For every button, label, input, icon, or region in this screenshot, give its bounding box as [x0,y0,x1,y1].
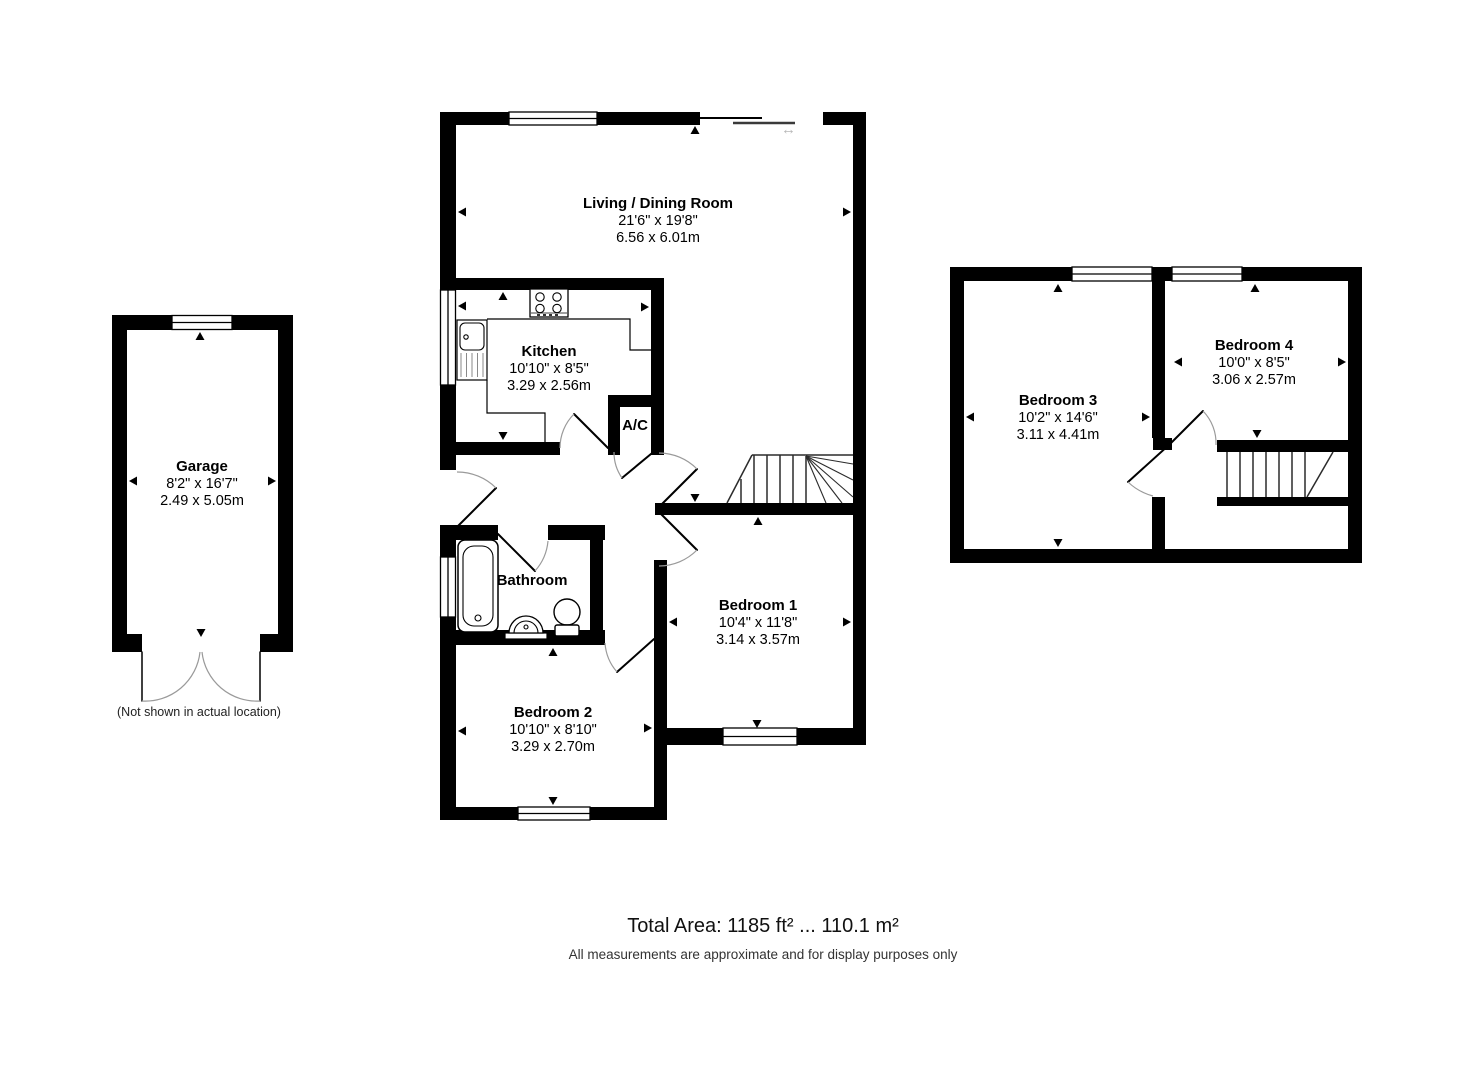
ac-closet-door-swing [614,449,657,478]
total-area-text: Total Area: 1185 ft² ... 110.1 m² [413,915,1113,938]
room-name: Living / Dining Room [548,195,768,213]
room-name: A/C [605,417,665,435]
room-dim-imperial: 8'2" x 16'7" [122,476,282,494]
garage-location-note: (Not shown in actual location) [89,705,309,719]
room-label-living-dining: Living / Dining Room 21'6" x 19'8" 6.56 … [548,195,768,248]
room-name: Bedroom 2 [473,704,633,722]
kitchen-door-swing [560,414,608,448]
room-label-kitchen: Kitchen 10'10" x 8'5" 3.29 x 2.56m [469,343,629,396]
room-dim-metric: 3.29 x 2.70m [473,739,633,757]
room-dim-imperial: 10'4" x 11'8" [678,615,838,633]
bedroom3-window [1072,267,1152,281]
room-name: Bedroom 4 [1174,337,1334,355]
bedroom2-window [518,807,590,820]
first-floor-doors [1128,411,1216,496]
front-door-swing [457,472,496,527]
room-dim-imperial: 21'6" x 19'8" [548,213,768,231]
staircase-ground [727,455,853,503]
hob-icon [530,289,568,317]
sliding-patio-door: ↔ [700,118,796,138]
bedroom4-window [1172,267,1242,281]
room-label-bedroom4: Bedroom 4 10'0" x 8'5" 3.06 x 2.57m [1174,337,1334,390]
room-dim-imperial: 10'0" x 8'5" [1174,355,1334,373]
disclaimer-text: All measurements are approximate and for… [413,947,1113,962]
room-dim-metric: 2.49 x 5.05m [122,493,282,511]
room-label-ac-closet: A/C [605,417,665,435]
bedroom3-door-swing [1128,444,1170,496]
bathroom-window [441,557,456,617]
room-dim-metric: 3.11 x 4.41m [978,427,1138,445]
staircase-first-floor [1227,452,1333,497]
room-label-bathroom: Bathroom [472,572,592,590]
room-dim-imperial: 10'10" x 8'10" [473,722,633,740]
room-name: Kitchen [469,343,629,361]
room-dim-metric: 3.06 x 2.57m [1174,372,1334,390]
room-label-bedroom1: Bedroom 1 10'4" x 11'8" 3.14 x 3.57m [678,597,838,650]
sliding-door-arrow-icon: ↔ [781,121,796,138]
bedroom1-door-swing [659,512,697,566]
living-room-window [509,112,597,125]
room-dim-imperial: 10'2" x 14'6" [978,410,1138,428]
pedestal-sink-icon [505,616,547,639]
room-name: Bathroom [472,572,592,590]
bedroom2-door-swing [605,639,654,672]
garage-window [172,316,232,330]
room-label-bedroom3: Bedroom 3 10'2" x 14'6" 3.11 x 4.41m [978,392,1138,445]
bedroom1-window [723,728,797,745]
room-dim-imperial: 10'10" x 8'5" [469,361,629,379]
room-name: Bedroom 1 [678,597,838,615]
room-label-bedroom2: Bedroom 2 10'10" x 8'10" 3.29 x 2.70m [473,704,633,757]
room-name: Garage [122,458,282,476]
garage-double-door [142,652,260,701]
bathroom-door-swing [498,534,548,571]
room-dim-metric: 3.29 x 2.56m [469,378,629,396]
kitchen-window [441,290,456,385]
room-dim-metric: 3.14 x 3.57m [678,632,838,650]
toilet-icon [554,599,580,636]
hallway-door-swing [659,453,697,507]
room-name: Bedroom 3 [978,392,1138,410]
room-label-garage: Garage 8'2" x 16'7" 2.49 x 5.05m [122,458,282,511]
bedroom4-landing-door-swing [1170,411,1216,445]
room-dim-metric: 6.56 x 6.01m [548,230,768,248]
